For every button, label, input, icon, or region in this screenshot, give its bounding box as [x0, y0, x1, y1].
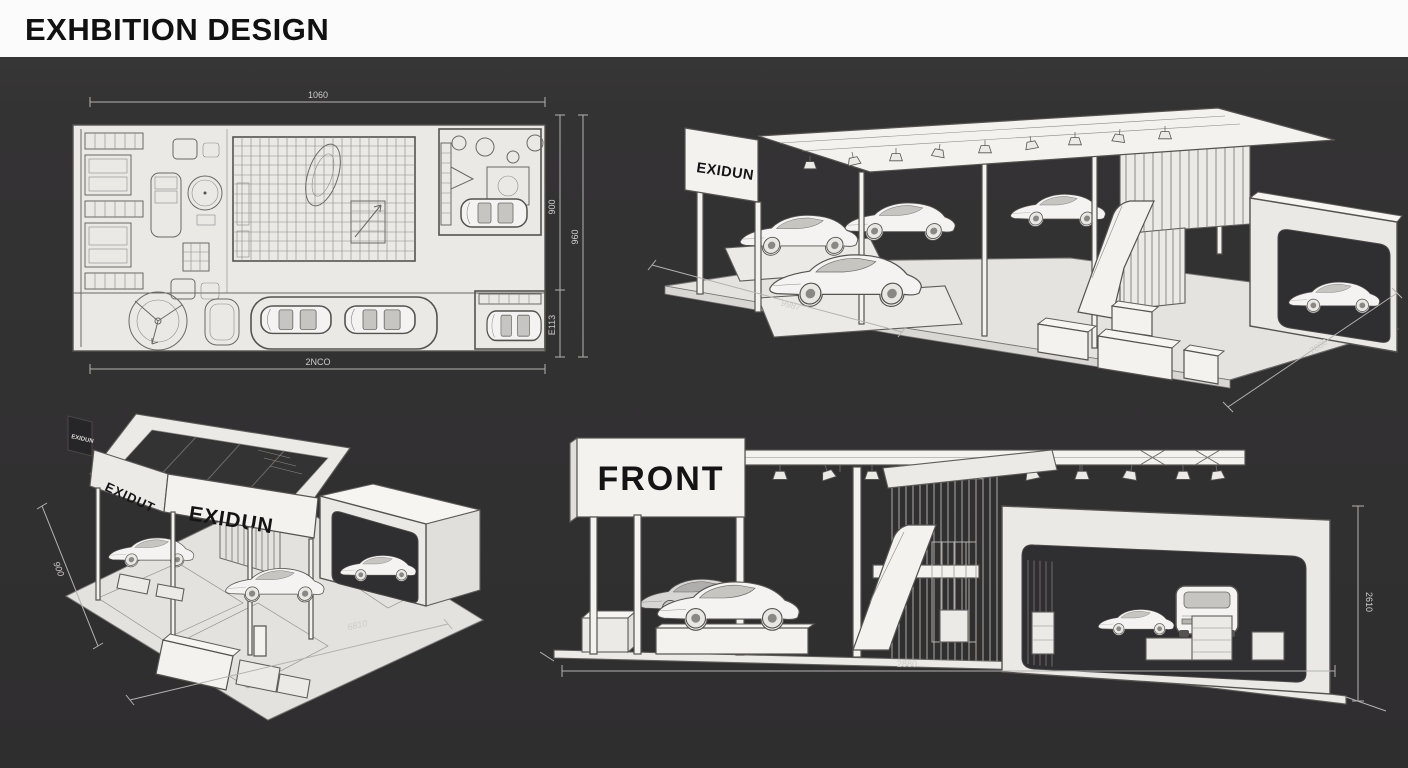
sign-board: EXIDUN [685, 128, 758, 202]
front-elevation-view: FRONT 2880 2610 [540, 420, 1408, 720]
page-title: EXHBITION DESIGN [0, 0, 1408, 45]
car [487, 311, 541, 340]
car [345, 306, 415, 333]
dim-label-left: 900 [51, 560, 66, 578]
title-bar: EXHBITION DESIGN [0, 0, 1408, 57]
car [461, 199, 527, 227]
presentation-board: EXHBITION DESIGN [0, 0, 1408, 768]
dim-label-right-lower: E113 [547, 315, 557, 335]
sign-board: FRONT [570, 438, 745, 654]
floor-plan-drawing [73, 125, 545, 351]
dim-label-right-upper: 900 [547, 199, 557, 214]
portal-structure [1002, 506, 1330, 694]
front-label: FRONT [597, 460, 724, 498]
dim-label-right-outer: 960 [570, 229, 580, 244]
dim-label-top: 1060 [308, 90, 328, 100]
dim-label-bottom: 2NCO [305, 357, 330, 367]
perspective-view-right: EXIDUN 9987 [640, 98, 1408, 430]
perspective-view-left: EXIDUT EXIDUN EXIDUN 900 [28, 388, 506, 738]
portal-structure [1250, 192, 1402, 352]
dim-label-bottom: 2880 [897, 659, 917, 669]
car [261, 306, 331, 333]
dim-label-right: 2610 [1364, 592, 1374, 612]
floor-plan-view: 1060 2NCO 900 E113 960 [55, 85, 615, 385]
car-platform [656, 624, 814, 654]
